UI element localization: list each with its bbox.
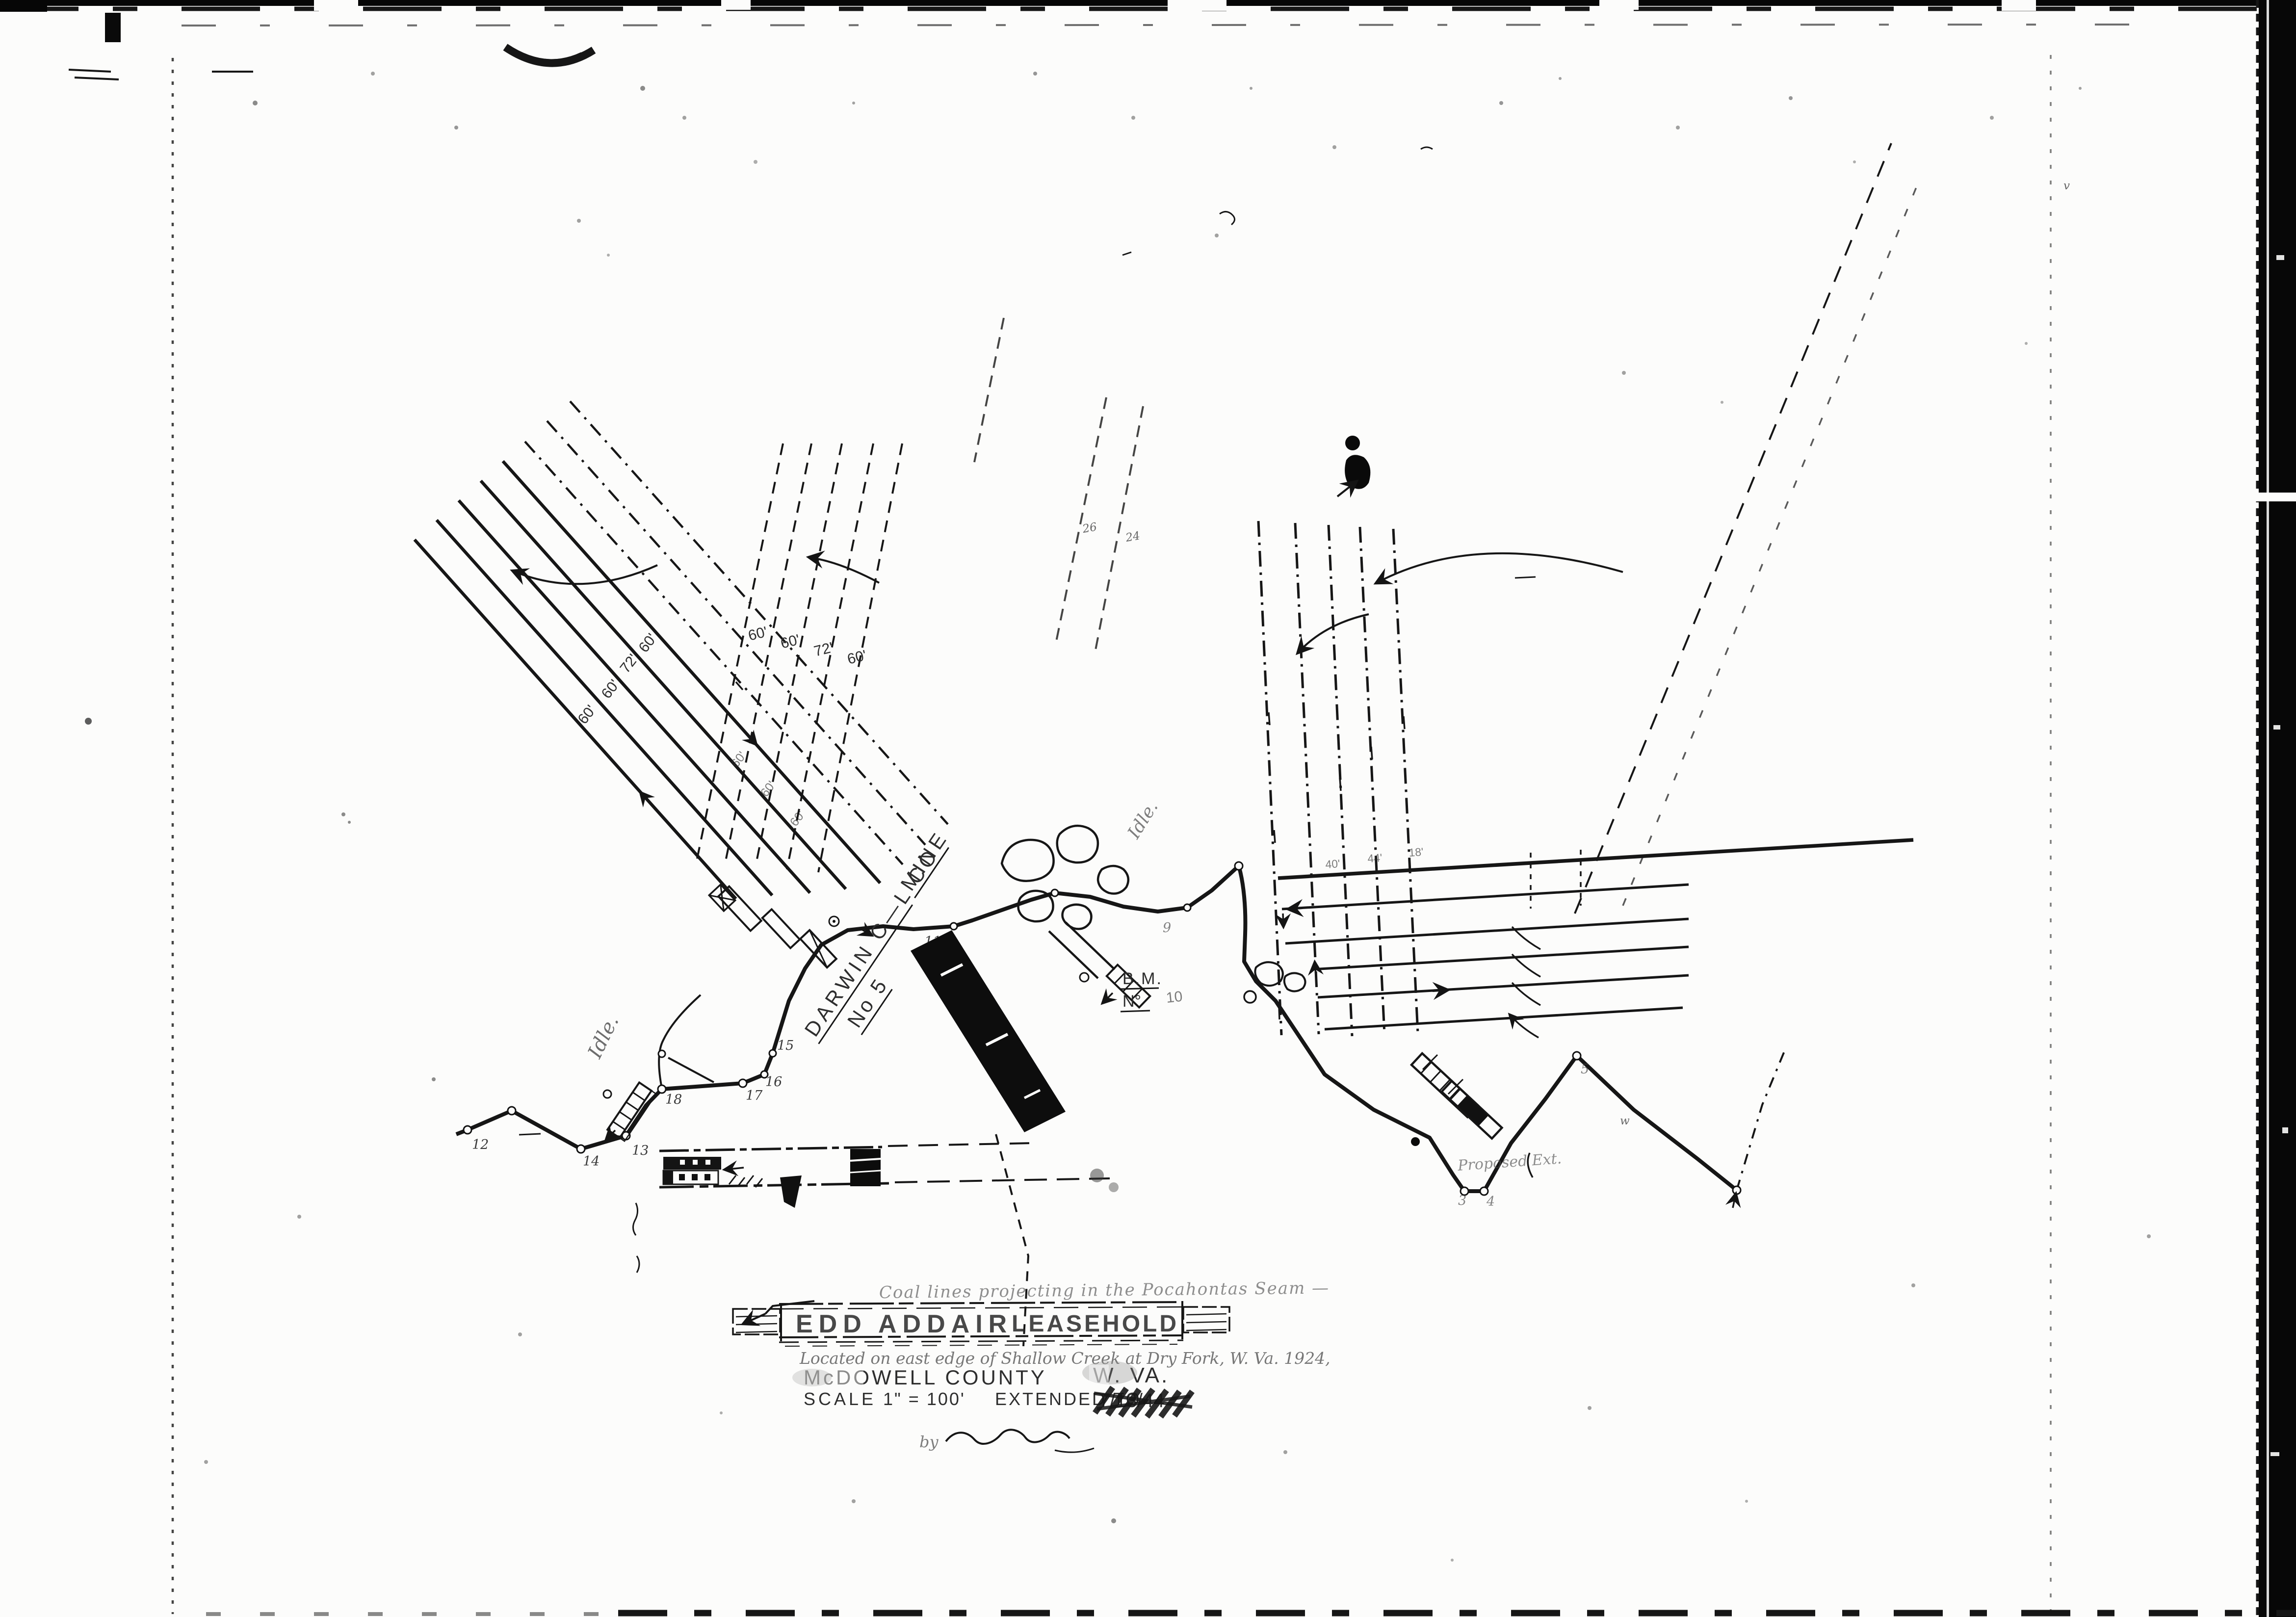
station-label: 17 — [746, 1088, 763, 1103]
proposed-label: Proposed Ext. — [1457, 1150, 1562, 1174]
map-drawing: 60' 60' 72' 60' 60' 60' 60' 60' 60' 72' … — [0, 0, 2296, 1617]
entry-width-label: 44' — [1367, 851, 1383, 865]
main-entries-grid: 40' 44' 18' — [1278, 840, 1913, 1038]
title-word-1: EDD — [796, 1310, 867, 1338]
entry-width-label: 40' — [1325, 857, 1341, 871]
station-label: 14 — [583, 1154, 600, 1169]
byline: by — [919, 1433, 939, 1451]
outcrop-boundary-line: 11 12 13 14 15 16 17 18 3 4 5 9 — [456, 862, 1786, 1209]
entry-width-label: 18' — [1409, 845, 1424, 859]
title-word-2: ADDAIR — [878, 1310, 1013, 1338]
title-block: Coal lines projecting in the Pocahontas … — [733, 1278, 1331, 1452]
signature: by — [919, 1430, 1094, 1452]
right-portal-cluster: Proposed Ext. w — [1411, 1053, 1630, 1174]
station-label-faint: 3 — [1458, 1193, 1466, 1208]
station-label: 12 — [472, 1137, 489, 1152]
faint-mark: 26 — [1081, 521, 1098, 536]
scan-artifact-right-band — [2255, 0, 2296, 1617]
station-label: 15 — [777, 1038, 794, 1053]
scale-label: SCALE — [804, 1389, 876, 1409]
ink-blob — [1345, 436, 1360, 450]
portal-ladder — [603, 1083, 656, 1142]
station-label-faint: 5 — [1581, 1062, 1589, 1077]
benchmark-text: B.M. — [1122, 969, 1163, 988]
benchmark-value: 10 — [1165, 989, 1183, 1006]
scanned-mine-map-sheet: 60' 60' 72' 60' 60' 60' 60' 60' 60' 72' … — [0, 0, 2296, 1617]
station-label: 13 — [632, 1143, 649, 1158]
benchmark-label: B.M. N° 10 — [1121, 969, 1183, 1012]
survey-arc-arrow — [513, 565, 657, 584]
smudge — [1089, 1365, 1109, 1386]
scan-artifact-left-edge — [0, 0, 253, 1614]
ink-blob-2 — [1345, 455, 1370, 489]
station-label-faint: 4 — [1486, 1194, 1495, 1209]
title-word-3: LEASEHOLD — [1012, 1311, 1179, 1337]
handwritten-annotation: Coal lines projecting in the Pocahontas … — [879, 1278, 1330, 1303]
scale-value: 1" = 100' — [883, 1389, 965, 1409]
faint-mark: v — [2063, 180, 2070, 192]
station-label: 18 — [665, 1092, 682, 1107]
left-entries-fan: 60' 60' 72' 60' 60' 60' 60' — [415, 401, 948, 899]
coke-yard-structure — [633, 1143, 1119, 1273]
spacing-label: 60' — [779, 631, 802, 652]
spacing-label: 60' — [747, 624, 769, 644]
paper-specks — [85, 72, 2151, 1562]
faint-mark: w — [1620, 1115, 1630, 1127]
portal-mouth-rooms — [1244, 962, 1305, 1003]
smudge-blot — [792, 1369, 832, 1386]
station-label: 16 — [765, 1074, 782, 1090]
survey-arc-arrow-2 — [809, 557, 879, 583]
survey-station-circles — [464, 862, 1741, 1195]
idle-annotation: Idle. — [583, 1012, 623, 1062]
far-right-section-lines — [1575, 143, 1916, 913]
benchmark-number-sign: N° — [1122, 992, 1141, 1011]
faint-mark: 24 — [1124, 529, 1141, 545]
scan-artifact-top-band — [0, 0, 2296, 26]
right-entries-fan — [1258, 436, 1623, 1036]
spacing-label: 60' — [846, 647, 868, 667]
idle-annotation: Idle. — [1123, 798, 1162, 843]
station-label-faint: 9 — [1163, 920, 1171, 936]
location-line: Located on east edge of Shallow Creek at… — [799, 1349, 1331, 1368]
spacing-label: 72' — [812, 639, 835, 659]
scan-artifact-bottom-band — [206, 1613, 2296, 1614]
extended-date-scribble: 7/13/44 — [1094, 1387, 1192, 1417]
